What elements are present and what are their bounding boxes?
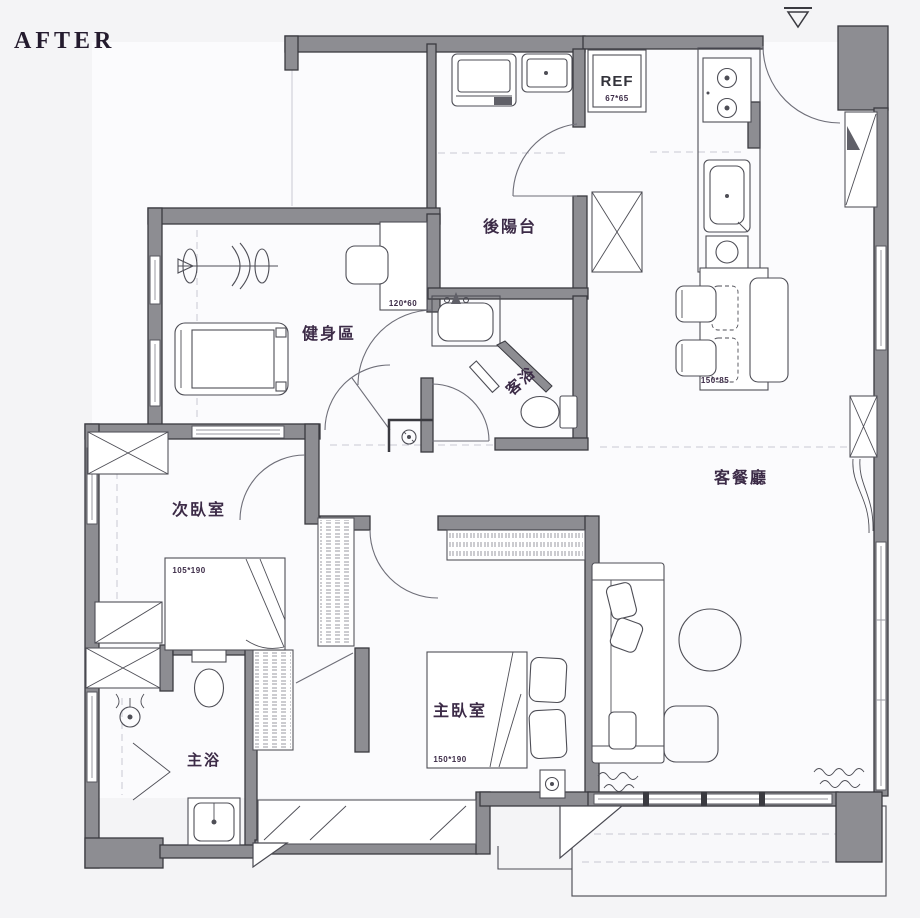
dining-bench <box>750 278 788 382</box>
low-cabinet-master-bedroom <box>258 800 476 844</box>
label-back-balcony: 後陽台 <box>483 217 537 236</box>
label-master-bath: 主浴 <box>187 751 221 769</box>
pillow <box>529 709 567 759</box>
wall-control-box <box>540 770 565 798</box>
toilet-guest <box>521 396 577 428</box>
label-second-bedroom: 次臥室 <box>172 500 226 519</box>
page-title: AFTER <box>14 28 115 54</box>
dishwasher <box>706 236 748 269</box>
wardrobe-corridor <box>318 518 354 646</box>
headboard-closet-master <box>447 530 585 560</box>
master-bath-sink <box>188 798 240 845</box>
dim-desk: 120*60 <box>389 299 417 308</box>
kitchen-sink <box>704 160 750 232</box>
pantry-x-kitchen <box>592 192 642 272</box>
desk-chair <box>346 246 388 284</box>
dim-dining-table: 150*85 <box>701 376 729 385</box>
shoe-cabinet-entry <box>845 112 877 207</box>
treadmill <box>175 323 288 395</box>
stove <box>703 58 751 122</box>
bedside-table <box>95 602 162 643</box>
dresser-walkin <box>253 650 293 750</box>
laundry-sink <box>522 54 572 92</box>
pillow <box>529 657 567 703</box>
dim-single-bed: 105*190 <box>172 566 205 575</box>
bath-balcony-door-leaf <box>253 843 287 867</box>
wardrobe-x-second-bedroom <box>88 432 168 474</box>
sofa-cushion <box>609 712 636 749</box>
sink-bowl <box>438 303 493 341</box>
floor-plan-drawing: AFTER 後陽台 健身區 客浴 次臥室 主浴 主臥室 客餐廳 REF 67*6… <box>0 0 920 918</box>
sofa <box>592 563 664 763</box>
bottom-balcony <box>498 806 886 896</box>
cabinet-x-right-wall <box>850 396 877 457</box>
closet-x-master-bath <box>86 648 160 688</box>
label-living-dining: 客餐廳 <box>714 468 768 487</box>
label-master-bedroom: 主臥室 <box>433 701 487 720</box>
toilet-master <box>192 650 226 707</box>
washing-machine <box>452 54 516 106</box>
dim-fridge: 67*65 <box>605 94 628 103</box>
floor-plan-page: AFTER 後陽台 健身區 客浴 次臥室 主浴 主臥室 客餐廳 REF 67*6… <box>0 0 920 918</box>
dim-double-bed: 150*190 <box>433 755 466 764</box>
label-fridge: REF <box>601 73 634 90</box>
entrance-marker-icon <box>784 8 812 27</box>
label-gym: 健身區 <box>302 324 356 343</box>
